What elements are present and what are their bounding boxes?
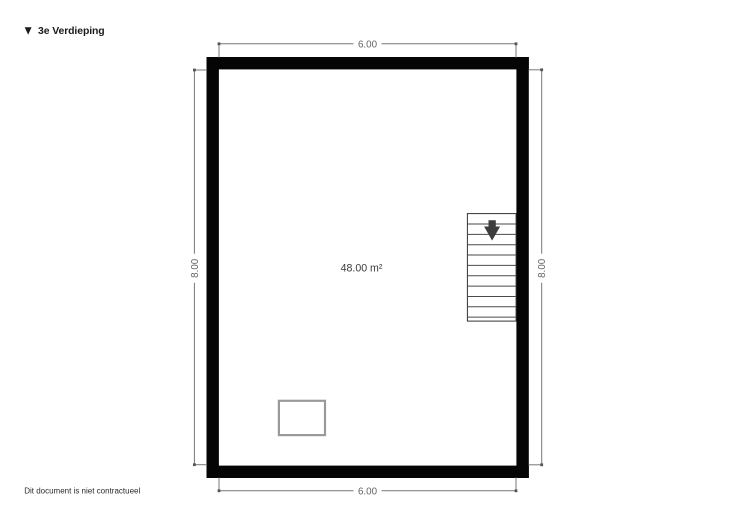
svg-text:3e Verdieping: 3e Verdieping: [38, 26, 105, 37]
svg-text:48.00 m²: 48.00 m²: [341, 263, 383, 275]
svg-text:Dit document is niet contractu: Dit document is niet contractueel: [24, 487, 140, 496]
svg-text:6.00: 6.00: [358, 486, 378, 497]
svg-text:8.00: 8.00: [537, 258, 548, 278]
svg-text:6.00: 6.00: [358, 39, 378, 50]
svg-text:8.00: 8.00: [190, 258, 201, 278]
